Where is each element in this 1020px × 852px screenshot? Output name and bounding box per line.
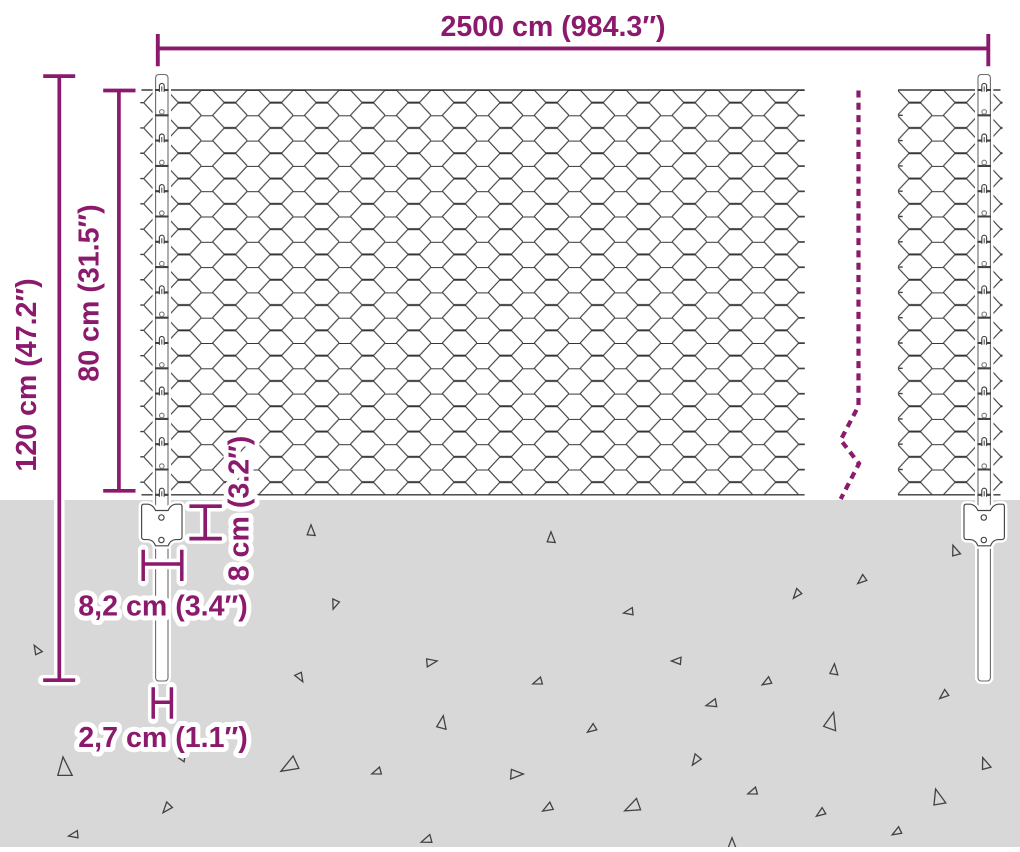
svg-text:2,7 cm (1.1″): 2,7 cm (1.1″) xyxy=(78,722,247,754)
svg-text:2500 cm (984.3″): 2500 cm (984.3″) xyxy=(440,11,665,43)
svg-text:120 cm (47.2″): 120 cm (47.2″) xyxy=(11,278,43,471)
svg-text:8,2 cm (3.4″): 8,2 cm (3.4″) xyxy=(78,591,247,623)
svg-text:8 cm (3.2″): 8 cm (3.2″) xyxy=(224,436,256,582)
svg-text:80 cm (31.5″): 80 cm (31.5″) xyxy=(74,204,106,381)
